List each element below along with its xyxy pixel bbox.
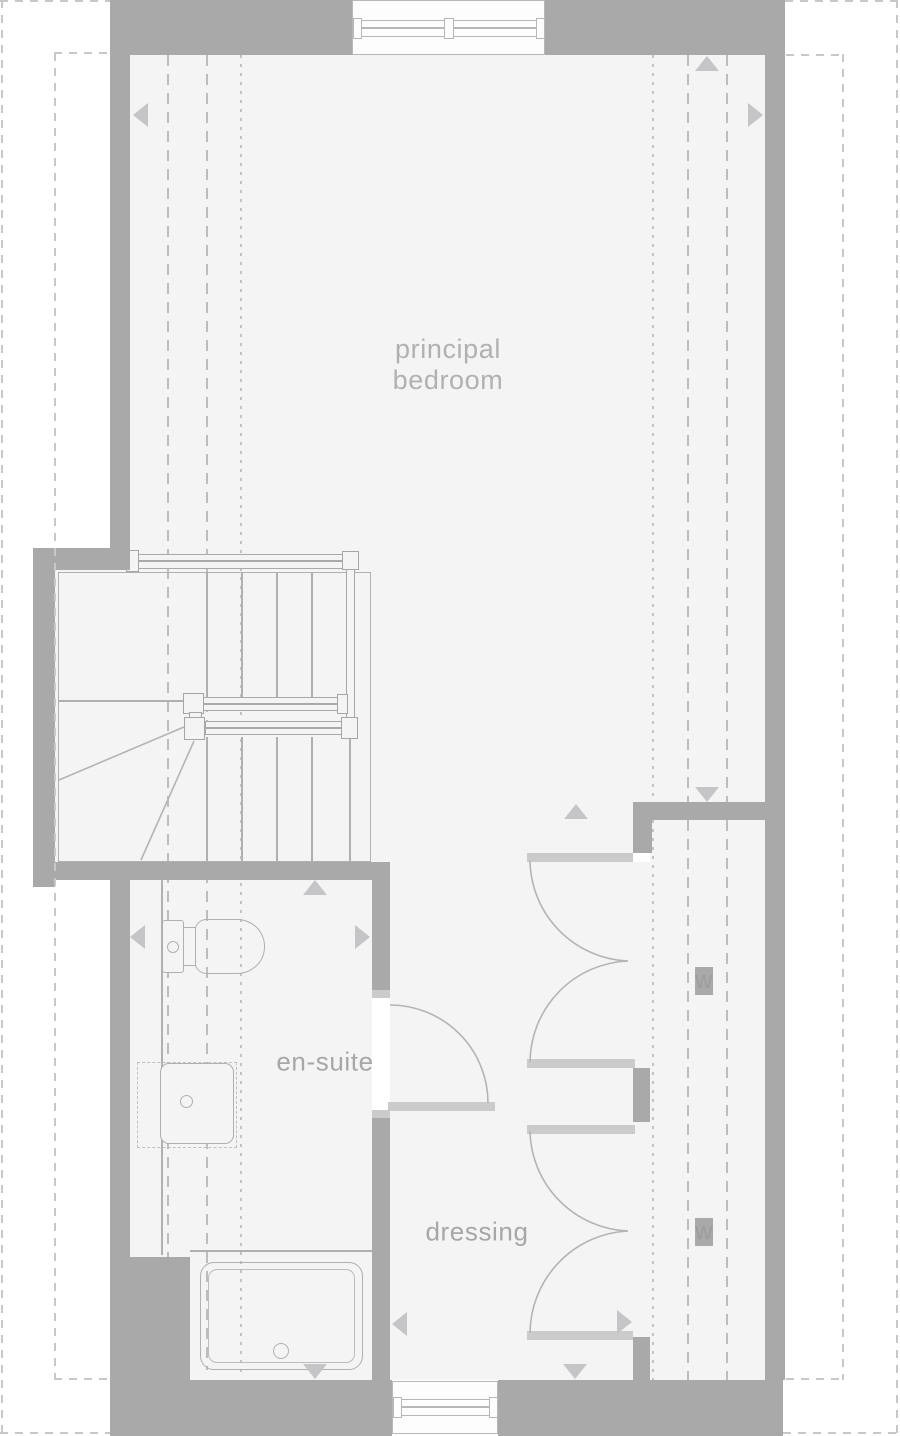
stair-edge-line xyxy=(349,737,351,862)
ceiling-line-right-2a xyxy=(687,55,689,802)
basin-tap xyxy=(180,1095,193,1108)
wardrobe-door-jamb xyxy=(527,1125,635,1134)
stair-tread xyxy=(276,737,278,862)
stair-newel-post xyxy=(184,717,205,740)
bottom-window xyxy=(392,1381,498,1434)
ceiling-line-right-1a xyxy=(652,55,654,802)
roofline-inner-left xyxy=(54,53,56,1380)
toilet-neck xyxy=(183,927,196,966)
roofline-inner-right-bottom xyxy=(786,1378,844,1380)
slope-arrow-left-icon xyxy=(130,925,145,949)
roofline-inner-left-top xyxy=(54,52,110,54)
wall-ensuite-left xyxy=(110,880,130,1257)
window-mullion xyxy=(353,18,362,39)
handrail-line xyxy=(206,727,342,729)
wardrobe-top-label: w xyxy=(695,967,713,995)
slope-arrow-up-icon xyxy=(564,804,588,819)
roofline-inner-right xyxy=(842,54,844,1380)
roofline-outer-right xyxy=(896,0,898,1436)
roofline-outer-bottom-left xyxy=(0,1432,110,1434)
stair-handrail-mid-lower xyxy=(205,721,343,735)
roofline-inner-left-bottom xyxy=(54,1378,110,1380)
stair-handrail-top xyxy=(129,554,352,569)
roofline-outer-top-left xyxy=(0,0,110,2)
ceiling-line-right-2b xyxy=(687,820,689,1380)
wall-wardrobe-pier-2 xyxy=(633,1068,650,1122)
slope-arrow-right-icon xyxy=(748,103,763,127)
wall-ensuite-jog xyxy=(110,1257,190,1380)
ceiling-line-right-1b xyxy=(652,820,654,1380)
wall-bottom-left xyxy=(110,1380,392,1436)
dressing-floor xyxy=(390,862,650,1380)
roofline-inner-right-top xyxy=(786,54,844,56)
toilet-bowl xyxy=(194,919,265,974)
stair-tread xyxy=(206,573,208,697)
roofline-outer-top-right xyxy=(785,0,898,2)
roofline-outer-bottom-right xyxy=(783,1432,898,1434)
window-mullion xyxy=(536,18,545,39)
wall-left-stair xyxy=(33,548,55,887)
stair-newel-post xyxy=(342,551,359,570)
dressing-label: dressing xyxy=(425,1217,528,1248)
stair-newel-post xyxy=(341,717,358,739)
wall-bottom-right xyxy=(498,1380,783,1436)
window-mullion xyxy=(489,1397,498,1418)
ensuite-door-jamb-cap xyxy=(372,990,390,998)
top-window xyxy=(352,0,545,55)
stair-landing-line xyxy=(59,700,185,702)
slope-arrow-down-icon xyxy=(563,1364,587,1379)
wardrobe-floor xyxy=(650,820,765,1380)
handrail-line xyxy=(130,560,351,562)
ensuite-door-leaf xyxy=(388,1102,495,1111)
toilet-flush-button xyxy=(167,941,179,953)
basin xyxy=(160,1063,234,1144)
stair-tread xyxy=(241,737,243,862)
wall-ensuite-top xyxy=(33,862,390,880)
slope-arrow-left-icon xyxy=(133,103,148,127)
stair-handrail-mid-upper xyxy=(203,697,347,711)
wall-right xyxy=(765,55,785,1380)
window-mullion xyxy=(393,1397,402,1418)
stair-newel-post xyxy=(183,693,204,714)
handrail-line xyxy=(204,703,346,705)
shower-drain xyxy=(273,1343,289,1359)
window-glazing xyxy=(393,1399,499,1416)
stair-tread xyxy=(276,573,278,697)
wardrobe-door-jamb xyxy=(527,853,633,862)
window-glazing-line xyxy=(397,1406,495,1408)
slope-arrow-down-icon xyxy=(303,1364,327,1379)
ensuite-label: en-suite xyxy=(276,1047,373,1078)
slope-arrow-up-icon xyxy=(303,880,327,895)
slope-arrow-left-icon xyxy=(392,1312,407,1336)
wall-wardrobe-pier-3 xyxy=(633,1337,650,1380)
ceiling-line-right-3a xyxy=(726,55,728,802)
slope-arrow-right-icon xyxy=(617,1310,632,1334)
stair-newel-cap xyxy=(337,694,348,714)
roofline-outer-left xyxy=(1,0,3,1436)
slope-arrow-right-icon xyxy=(355,925,370,949)
wardrobe-door-jamb xyxy=(527,1059,635,1068)
principal-bedroom-label-line1: principal xyxy=(393,334,504,365)
shower-alcove-line xyxy=(190,1250,372,1252)
stair-tread xyxy=(206,737,208,862)
wall-wardrobe-top xyxy=(633,802,765,820)
principal-bedroom-label: principal bedroom xyxy=(393,334,504,396)
wall-ensuite-right-lower xyxy=(372,1110,390,1380)
wardrobe-bottom-label: w xyxy=(695,1218,713,1246)
wall-wardrobe-pier-1 xyxy=(633,802,652,853)
stair-tread xyxy=(241,573,243,697)
wall-ensuite-right-upper xyxy=(372,880,390,998)
slope-arrow-down-icon xyxy=(695,787,719,802)
ensuite-door-jamb-cap xyxy=(372,1110,390,1118)
stair-tread xyxy=(311,573,313,697)
slope-arrow-up-icon xyxy=(695,56,719,71)
stairwell-outline xyxy=(58,572,371,862)
window-mullion xyxy=(444,18,454,39)
ceiling-line-right-3b xyxy=(726,820,728,1380)
stair-tread xyxy=(311,737,313,862)
floor-plan: principal bedroom en-suite dressing w w xyxy=(0,0,900,1436)
wall-left-upper xyxy=(110,55,130,570)
principal-bedroom-label-line2: bedroom xyxy=(393,365,504,396)
